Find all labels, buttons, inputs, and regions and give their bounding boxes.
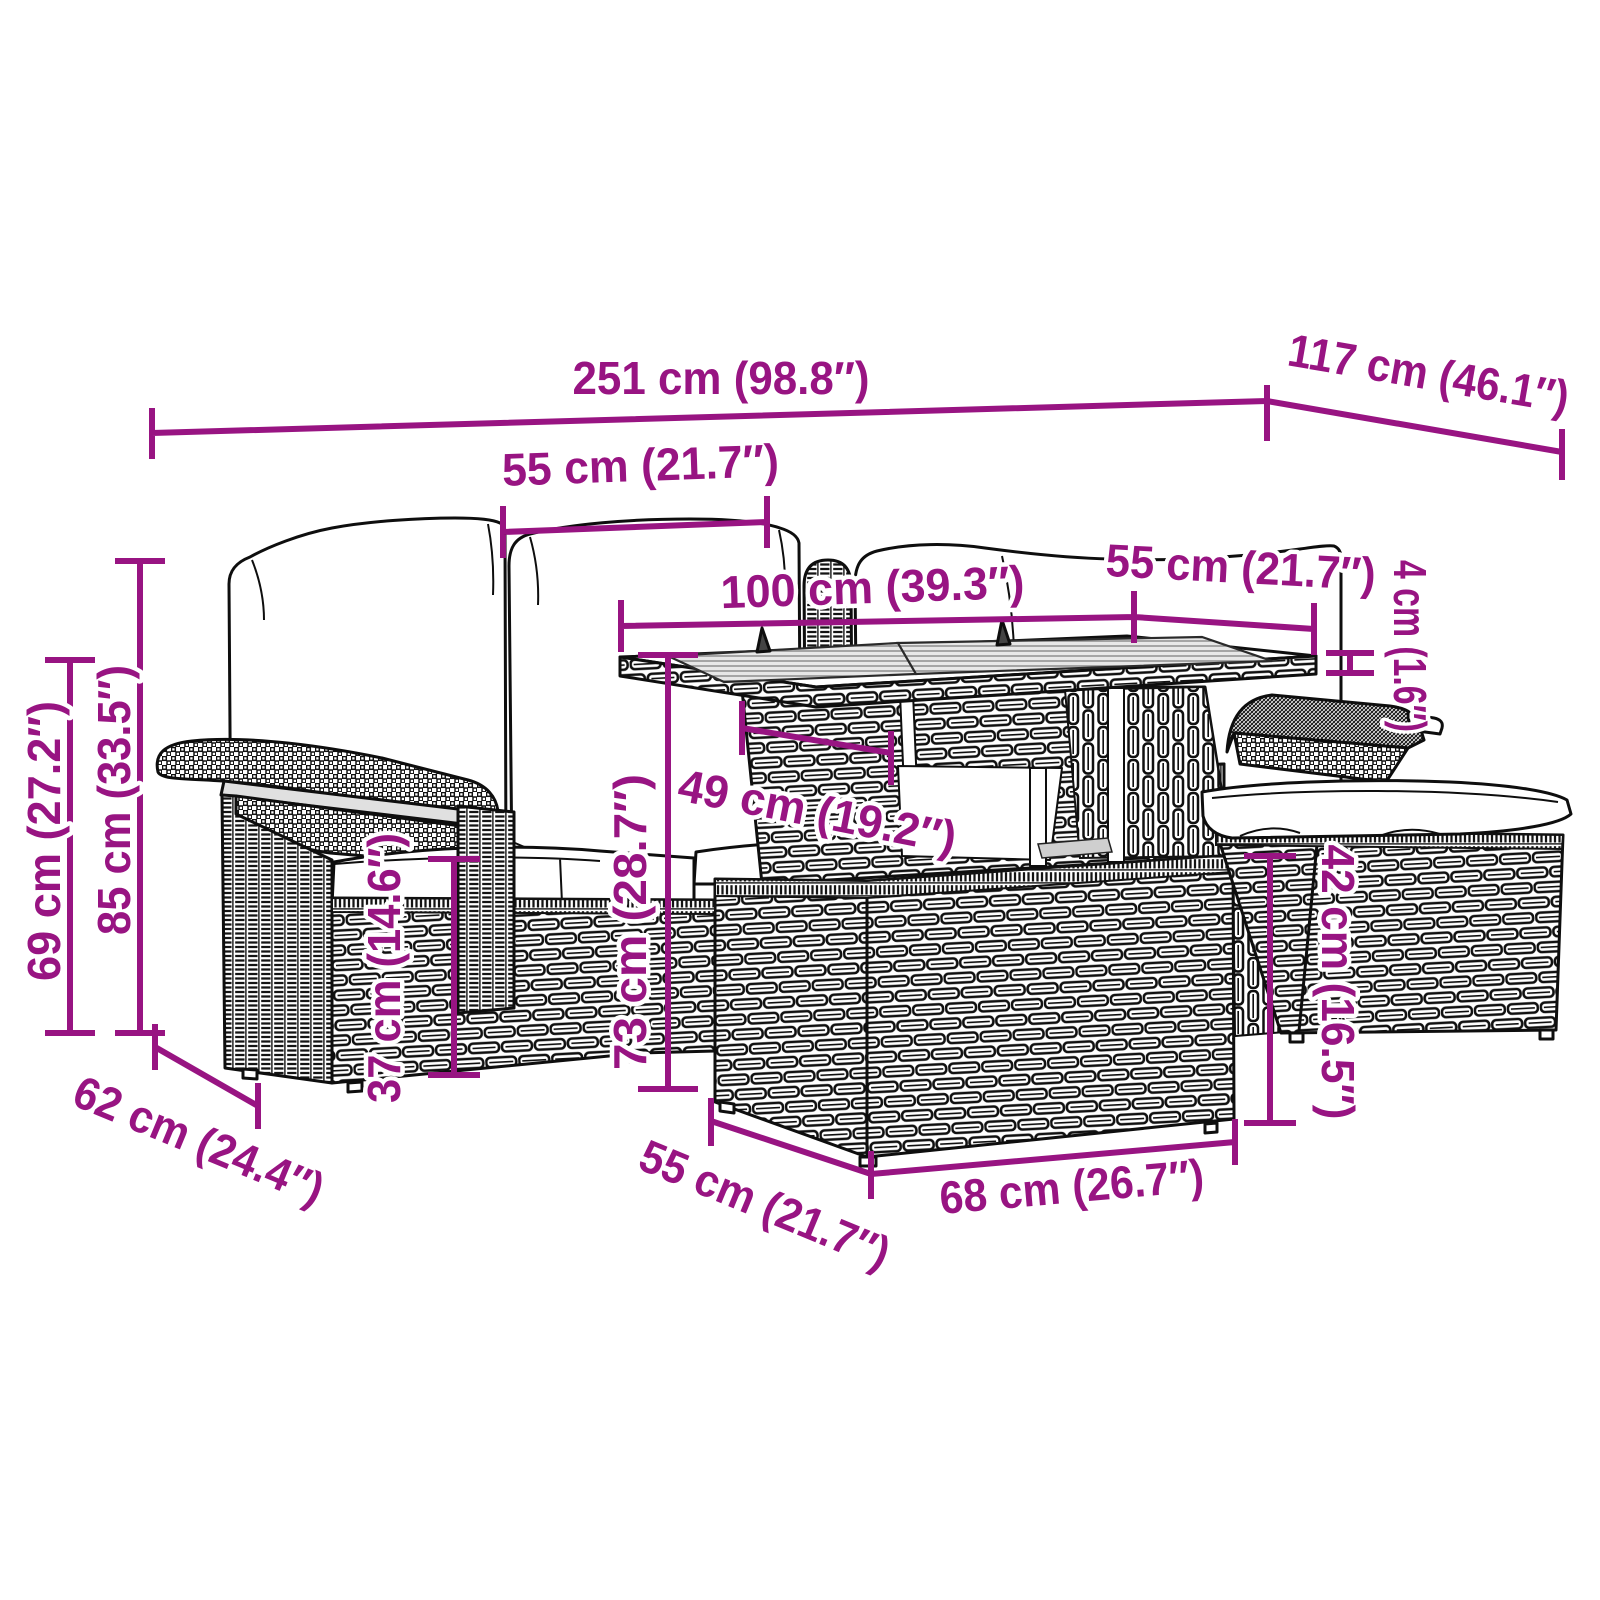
svg-text:37 cm (14.6″): 37 cm (14.6″)	[358, 833, 410, 1103]
svg-text:85 cm (33.5″): 85 cm (33.5″)	[88, 665, 140, 935]
svg-text:4 cm (1.6″): 4 cm (1.6″)	[1384, 560, 1436, 732]
svg-text:42 cm (16.5″): 42 cm (16.5″)	[1312, 845, 1364, 1120]
svg-text:73 cm (28.7″): 73 cm (28.7″)	[604, 774, 656, 1070]
svg-text:100 cm (39.3″): 100 cm (39.3″)	[720, 556, 1026, 619]
svg-text:69 cm (27.2″): 69 cm (27.2″)	[18, 701, 70, 981]
svg-text:251 cm (98.8″): 251 cm (98.8″)	[573, 352, 870, 404]
svg-text:55 cm (21.7″): 55 cm (21.7″)	[501, 434, 780, 496]
